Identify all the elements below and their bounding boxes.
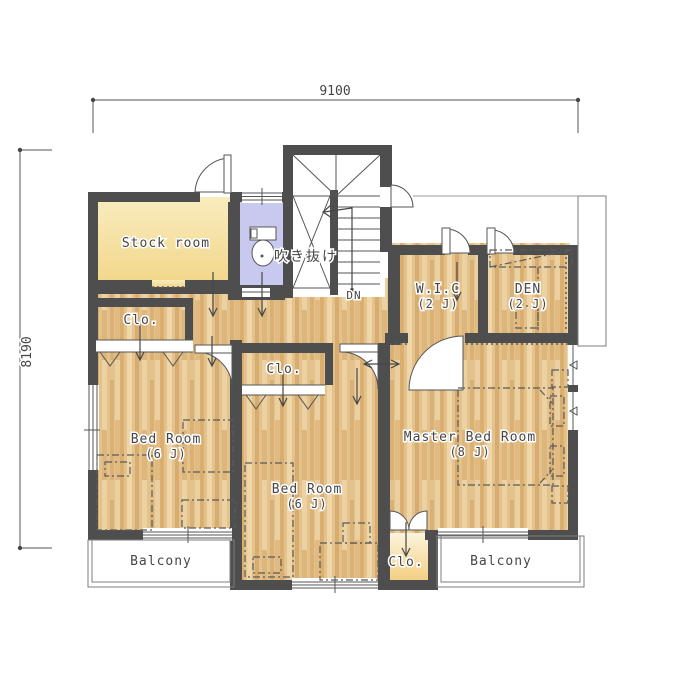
door-wic — [442, 228, 470, 254]
floor-plan: 9100 8190 Stock room 吹き抜け DN W.I.C (2 J)… — [0, 0, 680, 680]
stairs-down-label: DN — [346, 289, 361, 302]
closet-left-label: Clo. — [123, 313, 158, 328]
bedroom-left-size-label: (6 J) — [145, 447, 186, 461]
den-size-label: (2 J) — [507, 297, 548, 311]
dimension-top — [91, 98, 580, 133]
dimension-left-label: 8190 — [20, 336, 35, 367]
bedroom-middle-size-label: (6 J) — [286, 497, 327, 511]
wic-size-label: (2 J) — [417, 297, 458, 311]
toilet-icon — [250, 227, 276, 266]
window-master-bottom — [438, 526, 528, 543]
den-label: DEN — [515, 282, 541, 297]
closet-middle-label: Clo. — [266, 362, 301, 377]
window-bedroom-middle-bottom — [292, 576, 378, 593]
bedroom-left-label: Bed Room — [131, 432, 202, 447]
window-toilet-top — [242, 188, 282, 205]
balcony-left-label: Balcony — [130, 554, 192, 569]
floor-plan-drawing: 9100 8190 Stock room 吹き抜け DN W.I.C (2 J)… — [0, 0, 680, 680]
dimension-top-label: 9100 — [319, 84, 350, 99]
stock-room-label: Stock room — [122, 236, 210, 251]
bedroom-middle-label: Bed Room — [272, 482, 343, 497]
door-toilet-slider — [242, 288, 270, 297]
door-stock-room — [195, 155, 231, 193]
master-bedroom-label: Master Bed Room — [404, 430, 536, 445]
closet-bottom-label: Clo. — [388, 555, 423, 570]
atrium-label: 吹き抜け — [274, 249, 338, 265]
balcony-right-label: Balcony — [470, 554, 532, 569]
master-bedroom-size-label: (8 J) — [449, 445, 490, 459]
door-stairs-corridor — [380, 185, 413, 207]
wic-label: W.I.C — [416, 282, 460, 297]
